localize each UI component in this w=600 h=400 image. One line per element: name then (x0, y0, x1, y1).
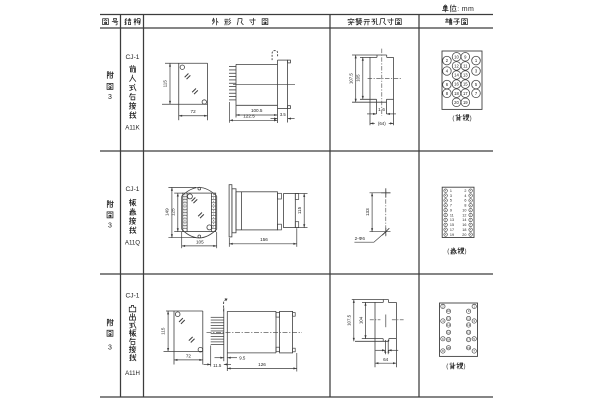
svg-text:100.5: 100.5 (251, 108, 263, 113)
svg-text:156: 156 (260, 237, 268, 242)
svg-text:(: ( (446, 364, 448, 370)
svg-text:6: 6 (464, 199, 466, 203)
svg-text:17: 17 (463, 91, 468, 96)
svg-text:133: 133 (365, 208, 370, 216)
svg-text:16: 16 (454, 82, 459, 87)
svg-text:): ) (470, 116, 472, 122)
svg-text:20: 20 (447, 346, 451, 350)
svg-text:(: ( (452, 116, 454, 122)
svg-text:CJ-1: CJ-1 (126, 292, 140, 299)
svg-text:4: 4 (442, 319, 444, 323)
svg-text:11: 11 (467, 317, 470, 321)
svg-text:122.5: 122.5 (243, 114, 255, 119)
svg-text:19: 19 (467, 346, 471, 350)
svg-text:115: 115 (161, 327, 166, 335)
svg-text:19: 19 (463, 100, 468, 105)
svg-text:15: 15 (463, 82, 468, 87)
svg-text:13: 13 (463, 73, 468, 78)
svg-text:125: 125 (171, 208, 176, 216)
svg-text:9: 9 (468, 309, 470, 313)
svg-text:CJ-1: CJ-1 (126, 186, 140, 193)
svg-text:CJ-1: CJ-1 (126, 54, 140, 61)
svg-text:105: 105 (196, 239, 204, 244)
svg-text:): ) (464, 364, 466, 370)
svg-text:): ) (465, 249, 467, 255)
svg-text:10: 10 (454, 54, 459, 59)
svg-text:149: 149 (164, 208, 169, 216)
svg-text:6: 6 (442, 337, 444, 341)
svg-text:5: 5 (473, 337, 475, 341)
svg-text:2-Φ6: 2-Φ6 (355, 236, 366, 241)
svg-text:13: 13 (450, 218, 454, 222)
svg-text:10: 10 (462, 208, 466, 212)
svg-text:9: 9 (450, 208, 452, 212)
svg-text:2: 2 (464, 189, 466, 193)
svg-text:A11H: A11H (125, 370, 140, 377)
svg-text:12: 12 (454, 63, 459, 68)
svg-text:16: 16 (447, 330, 451, 334)
svg-text:107.5: 107.5 (347, 314, 352, 326)
svg-text:1: 1 (378, 107, 381, 112)
svg-text:6.4: 6.4 (384, 349, 390, 354)
svg-text:3: 3 (108, 345, 112, 352)
svg-text:3: 3 (108, 94, 112, 101)
svg-text:17: 17 (467, 338, 471, 342)
svg-text:7: 7 (473, 349, 475, 353)
svg-text:3: 3 (450, 194, 452, 198)
svg-text:5: 5 (450, 199, 452, 203)
svg-text:15: 15 (467, 330, 471, 334)
svg-text:15: 15 (450, 223, 454, 227)
svg-text:(: ( (447, 249, 449, 255)
svg-text:19: 19 (450, 233, 454, 237)
svg-text:18: 18 (462, 228, 466, 232)
svg-text:9: 9 (464, 54, 467, 59)
svg-text:9.5: 9.5 (239, 355, 246, 360)
svg-text:3.5: 3.5 (280, 112, 286, 117)
svg-text:115: 115 (163, 80, 168, 88)
svg-text::: : (457, 6, 459, 13)
svg-text:2: 2 (446, 58, 449, 63)
svg-text:11: 11 (450, 213, 454, 217)
svg-text:A11K: A11K (125, 125, 139, 132)
svg-text:1: 1 (473, 304, 475, 308)
svg-text:5: 5 (475, 82, 478, 87)
svg-text:3: 3 (108, 223, 112, 230)
svg-text:4: 4 (464, 194, 466, 198)
svg-text:17: 17 (450, 228, 454, 232)
svg-text:64: 64 (383, 357, 389, 362)
svg-text:72: 72 (191, 109, 197, 114)
svg-text:11: 11 (463, 63, 468, 68)
svg-text:4: 4 (446, 69, 449, 74)
svg-text:107.5: 107.5 (348, 73, 353, 85)
svg-text:115: 115 (297, 206, 302, 214)
svg-text:6: 6 (382, 107, 385, 112)
svg-text:A11Q: A11Q (125, 240, 140, 247)
svg-text:14: 14 (454, 73, 459, 78)
svg-text:72: 72 (186, 353, 192, 358)
svg-text:18: 18 (447, 338, 451, 342)
svg-text:2: 2 (442, 304, 444, 308)
svg-text:12: 12 (447, 317, 451, 321)
svg-text:3: 3 (475, 69, 478, 74)
svg-text:3: 3 (473, 319, 475, 323)
svg-text:104: 104 (358, 316, 363, 324)
svg-text:8: 8 (464, 204, 466, 208)
svg-text:7: 7 (450, 204, 452, 208)
svg-text:13: 13 (467, 323, 471, 327)
svg-text:16: 16 (462, 223, 466, 227)
svg-text:6: 6 (446, 82, 449, 87)
svg-text:(64): (64) (378, 121, 386, 126)
svg-text:1: 1 (475, 58, 478, 63)
svg-text:20: 20 (454, 100, 459, 105)
svg-text:7: 7 (475, 91, 478, 96)
svg-text:126: 126 (258, 362, 266, 367)
svg-text:mm: mm (462, 6, 474, 13)
svg-text:12: 12 (462, 213, 466, 217)
svg-text:11.5: 11.5 (213, 363, 222, 368)
svg-text:20: 20 (462, 233, 466, 237)
svg-text:14: 14 (462, 218, 466, 222)
svg-text:105: 105 (356, 74, 361, 82)
svg-text:1: 1 (450, 189, 452, 193)
svg-text:8: 8 (446, 91, 449, 96)
svg-text:18: 18 (454, 91, 459, 96)
svg-text:8: 8 (442, 349, 444, 353)
svg-text:10: 10 (447, 309, 451, 313)
svg-text:14: 14 (447, 323, 451, 327)
